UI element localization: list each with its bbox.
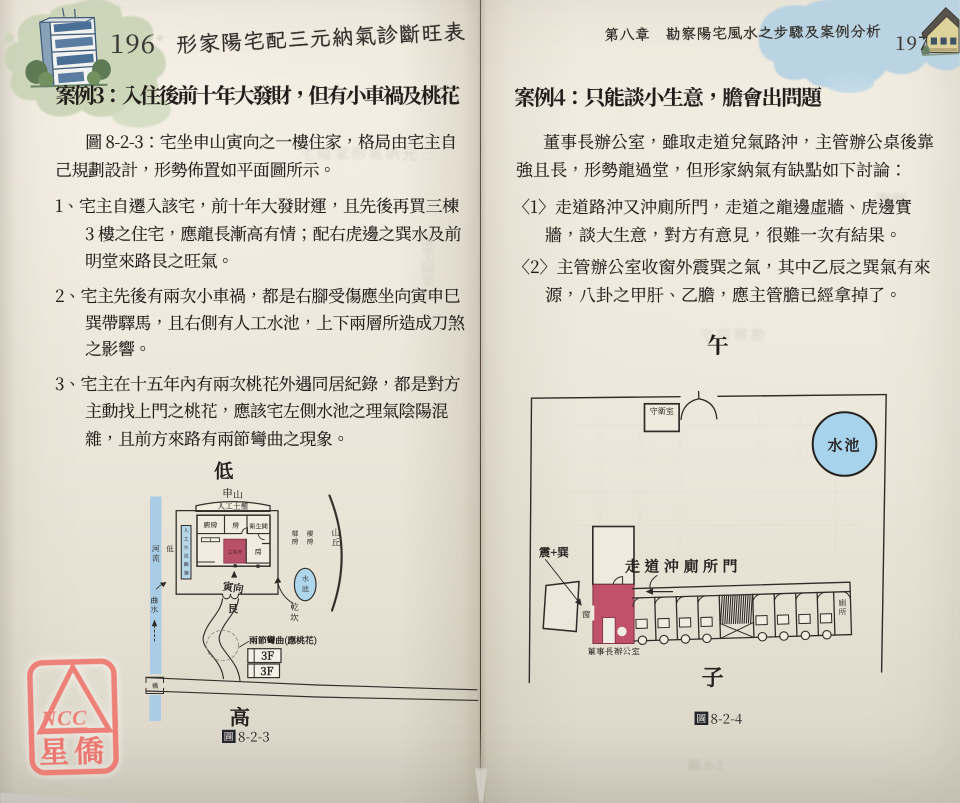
svg-text:房: 房: [232, 521, 239, 531]
svg-text:低: 低: [166, 544, 174, 555]
svg-text:水池: 水池: [302, 574, 310, 595]
svg-text:房: 房: [255, 548, 262, 558]
svg-text:圖: 圖: [224, 728, 234, 743]
svg-text:曲水: 曲水: [151, 595, 159, 615]
svg-text:申山: 申山: [222, 485, 243, 501]
svg-text:8-2-4: 8-2-4: [711, 708, 743, 728]
svg-text:3F: 3F: [261, 648, 275, 664]
svg-text:山丘: 山丘: [332, 526, 341, 549]
svg-text:守衛室: 守衛室: [650, 406, 675, 417]
svg-text:乾坎: 乾坎: [290, 601, 299, 624]
svg-text:艮: 艮: [228, 602, 239, 617]
svg-text:鄰房: 鄰房: [292, 528, 299, 546]
svg-text:人工土壟: 人工土壟: [217, 501, 248, 512]
svg-text:廁所: 廁所: [838, 598, 847, 618]
svg-text:3F: 3F: [260, 663, 274, 679]
svg-text:圖: 圖: [696, 710, 706, 725]
svg-text:星僑: 星僑: [38, 726, 109, 772]
svg-text:子: 子: [702, 661, 724, 692]
svg-text:寅向: 寅向: [222, 579, 246, 597]
svg-text:主臥房: 主臥房: [228, 549, 243, 556]
svg-text:河流: 河流: [152, 544, 160, 565]
svg-text:兩節彎曲(應桃花): 兩節彎曲(應桃花): [249, 634, 317, 647]
svg-text:震+巽: 震+巽: [538, 545, 569, 561]
svg-text:水池: 水池: [827, 435, 861, 456]
svg-text:窗: 窗: [582, 609, 591, 621]
svg-text:廚房: 廚房: [204, 521, 218, 531]
svg-text:衛生間: 衛生間: [249, 522, 269, 531]
svg-text:董事長辦公室: 董事長辦公室: [588, 646, 641, 658]
svg-text:樓房: 樓房: [307, 528, 314, 546]
svg-text:橋: 橋: [152, 681, 159, 690]
svg-text:低: 低: [213, 456, 234, 484]
svg-text:走道沖廁所門: 走道沖廁所門: [625, 556, 742, 577]
svg-text:8-2-3: 8-2-3: [238, 726, 270, 746]
